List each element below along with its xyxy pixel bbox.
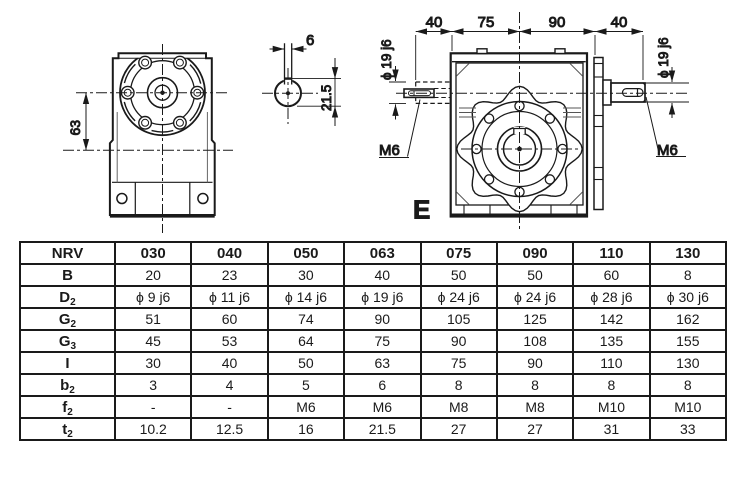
table-cell: 12.5 [191,418,267,440]
table-cell: 8 [497,374,573,396]
table-row: f2--M6M6M8M8M10M10 [20,396,726,418]
table-cell: M6 [268,396,344,418]
table-cell: 27 [421,418,497,440]
table-cell: 142 [573,308,649,330]
table-cell: ϕ 24 j6 [421,286,497,308]
table-cell: - [115,396,191,418]
dim-label-40-left: 40 [426,14,443,31]
table-cell: 75 [421,352,497,374]
output-shaft [611,83,645,102]
table-cell: M10 [650,396,726,418]
table-cell: - [191,396,267,418]
dim-label-40-right: 40 [611,14,628,31]
table-cell: 50 [497,264,573,286]
table-cell: 4 [191,374,267,396]
table-cell: 21.5 [344,418,420,440]
table-cell: ϕ 14 j6 [268,286,344,308]
table-cell: 33 [650,418,726,440]
dim-label-shaft-dia-right: ϕ 19 j6 [656,37,671,78]
row-label: G3 [20,330,115,352]
table-cell: 50 [421,264,497,286]
table-cell: 30 [115,352,191,374]
front-view: 63 [63,44,233,233]
table-cell: 8 [573,374,649,396]
table-cell: 3 [115,374,191,396]
table-cell: 8 [650,264,726,286]
dim-label-90: 90 [549,14,566,31]
table-cell: 75 [344,330,420,352]
table-cell: M6 [344,396,420,418]
row-label: b2 [20,374,115,396]
table-row: G251607490105125142162 [20,308,726,330]
table-cell: M8 [421,396,497,418]
table-row: G34553647590108135155 [20,330,726,352]
table-cell: ϕ 24 j6 [497,286,573,308]
tap-label-left: M6 [379,142,400,159]
table-cell: 90 [497,352,573,374]
col-header: 040 [191,242,267,264]
table-cell: M10 [573,396,649,418]
col-header: 030 [115,242,191,264]
table-cell: 135 [573,330,649,352]
table-header-row: NRV030040050063075090110130 [20,242,726,264]
table-cell: 105 [421,308,497,330]
col-header: 130 [650,242,726,264]
table-cell: ϕ 19 j6 [344,286,420,308]
table-cell: 20 [115,264,191,286]
dim-label-75: 75 [478,14,495,31]
table-cell: 74 [268,308,344,330]
table-cell: 40 [191,352,267,374]
table-row: B202330405050608 [20,264,726,286]
col-header: 050 [268,242,344,264]
table-cell: 60 [573,264,649,286]
table-cell: 110 [573,352,649,374]
col-header: 110 [573,242,649,264]
col-header: 063 [344,242,420,264]
output-flange-plate [594,58,603,210]
dim-label-keyway-width: 6 [306,32,314,49]
table-cell: 53 [191,330,267,352]
tap-label-right: M6 [657,142,678,159]
side-view: 40 75 90 40 ϕ 19 j6 ϕ 19 j6 M6 M6 E [379,12,690,230]
row-label: B [20,264,115,286]
table-cell: 60 [191,308,267,330]
row-label: G2 [20,308,115,330]
dim-label-hub-depth: 21.5 [319,85,334,111]
col-header: 075 [421,242,497,264]
table-cell: M8 [497,396,573,418]
gearbox-datasheet: 63 6 21.5 [0,0,750,502]
technical-drawings: 63 6 21.5 [0,0,750,240]
table-cell: 50 [268,352,344,374]
dim-label-shaft-dia-left: ϕ 19 j6 [379,39,394,80]
spec-table: NRV030040050063075090110130B202330405050… [19,241,727,441]
table-cell: 31 [573,418,649,440]
table-cell: 45 [115,330,191,352]
spec-table-body: NRV030040050063075090110130B202330405050… [20,242,726,440]
table-cell: 162 [650,308,726,330]
col-header: 090 [497,242,573,264]
shaft-section-view: 6 21.5 [262,32,341,126]
table-cell: 6 [344,374,420,396]
table-cell: 64 [268,330,344,352]
table-cell: 5 [268,374,344,396]
table-cell: 130 [650,352,726,374]
table-cell: ϕ 11 j6 [191,286,267,308]
row-label: D2 [20,286,115,308]
table-cell: 90 [344,308,420,330]
table-cell: 51 [115,308,191,330]
table-cell: 90 [421,330,497,352]
table-cell: ϕ 28 j6 [573,286,649,308]
table-cell: 155 [650,330,726,352]
table-cell: 8 [421,374,497,396]
row-label: f2 [20,396,115,418]
table-cell: 27 [497,418,573,440]
table-cell: ϕ 9 j6 [115,286,191,308]
row-label: I [20,352,115,374]
view-letter: E [413,195,430,225]
table-row: I304050637590110130 [20,352,726,374]
table-cell: 16 [268,418,344,440]
row-label: t2 [20,418,115,440]
table-row: D2ϕ 9 j6ϕ 11 j6ϕ 14 j6ϕ 19 j6ϕ 24 j6ϕ 24… [20,286,726,308]
table-cell: 30 [268,264,344,286]
table-cell: 40 [344,264,420,286]
table-row: b234568888 [20,374,726,396]
table-cell: 125 [497,308,573,330]
table-cell: ϕ 30 j6 [650,286,726,308]
table-row: t210.212.51621.527273133 [20,418,726,440]
corner-header: NRV [20,242,115,264]
table-cell: 108 [497,330,573,352]
table-cell: 63 [344,352,420,374]
table-cell: 10.2 [115,418,191,440]
table-cell: 8 [650,374,726,396]
dim-label-axis-distance: 63 [67,120,83,136]
table-cell: 23 [191,264,267,286]
